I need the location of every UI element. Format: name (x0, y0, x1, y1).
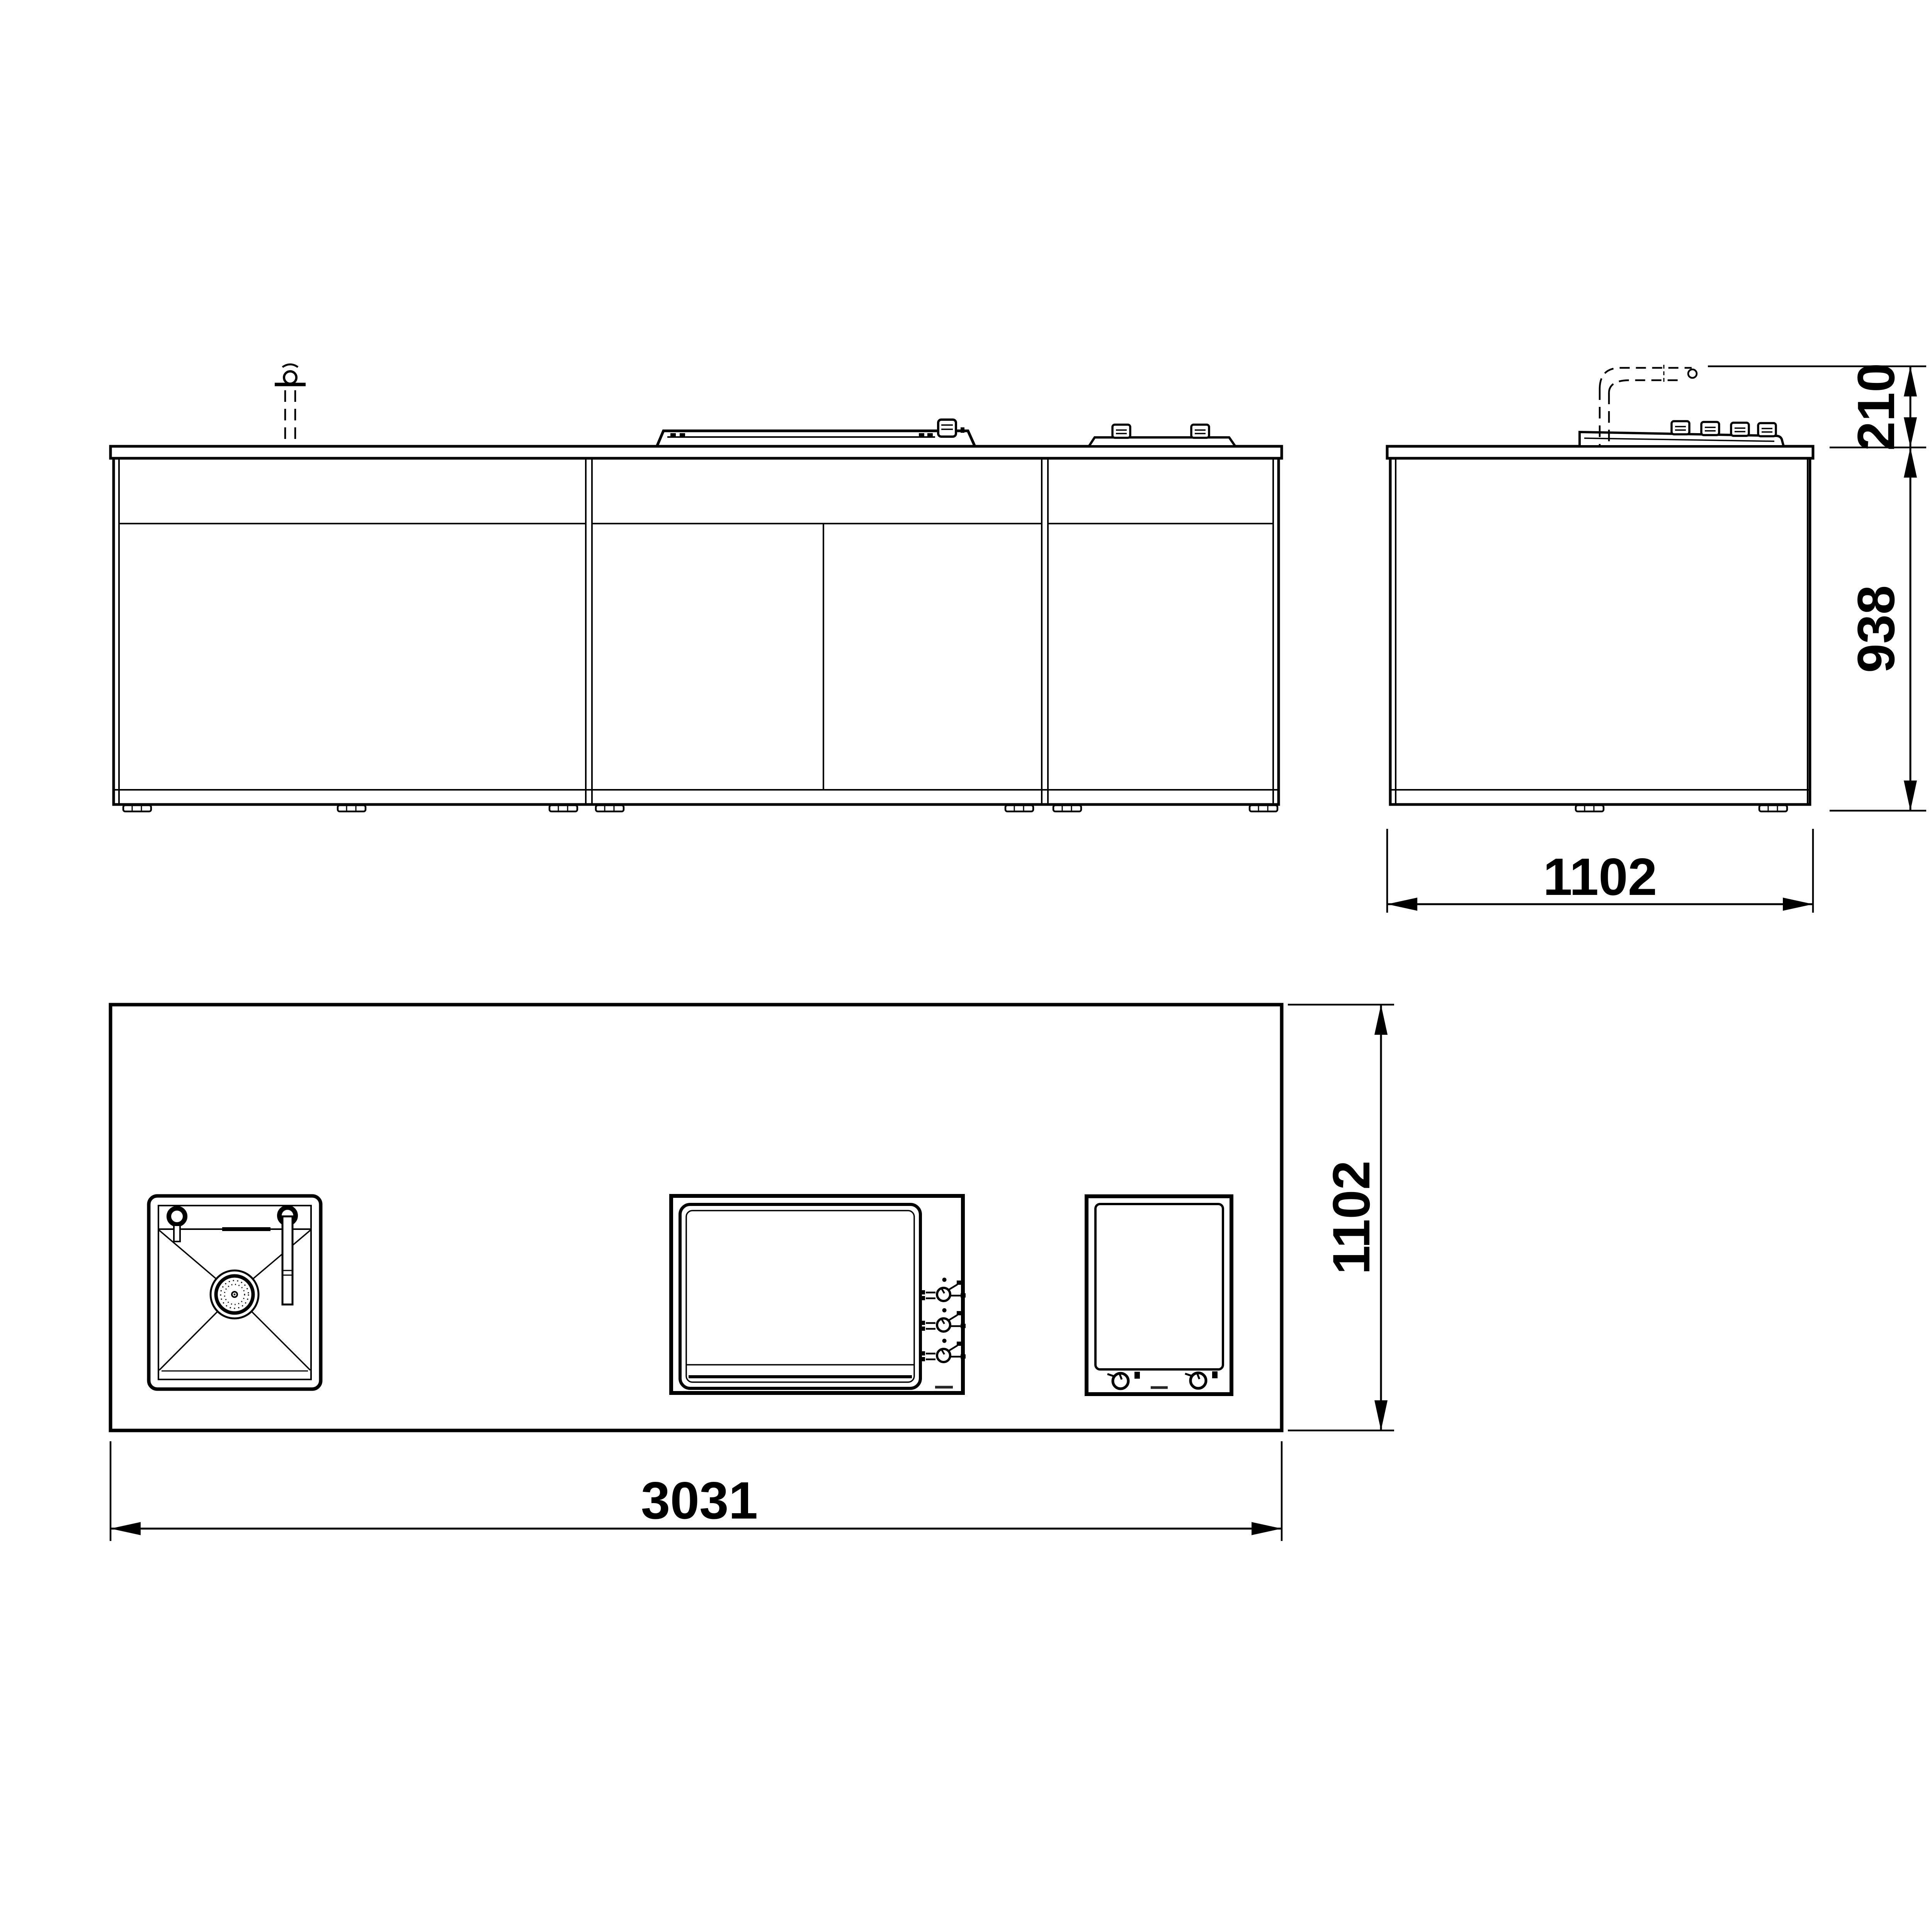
grill-lid-hinge-tick (670, 433, 676, 437)
grill-lid-hinge-tick (919, 433, 924, 437)
cabinet-foot (596, 805, 624, 811)
cabinet-foot (1759, 805, 1787, 811)
rail-knob (1758, 423, 1776, 436)
side-burner-base (1089, 437, 1235, 446)
sink-drain-center-dot (234, 1294, 236, 1296)
grill-lid-base (657, 431, 975, 446)
dim-label-side-depth: 1102 (1543, 847, 1657, 906)
side-burner-knob (1191, 425, 1209, 438)
grill-surface-liner (686, 1211, 914, 1382)
rail-knob (1701, 422, 1719, 435)
plan-view (111, 1005, 1282, 1430)
rail-knob (1672, 421, 1689, 434)
grill-lid-hinge-tick (927, 433, 933, 437)
dim-label-plan-depth: 1102 (1322, 1160, 1381, 1274)
cabinet-foot (1250, 805, 1277, 811)
canvas-background (0, 0, 1932, 1932)
grill-lid-thermometer-knob (938, 420, 956, 437)
dim-label-faucet-height: 210 (1847, 363, 1905, 451)
sink-tap-lever (174, 1225, 180, 1242)
grill-lid-hinge-tick (680, 433, 685, 437)
cabinet-foot (338, 805, 366, 811)
front-worktop-slab (111, 446, 1282, 458)
grill-lid-latch (961, 427, 964, 433)
front-cabinet-body (114, 458, 1279, 804)
dim-label-overall-length: 3031 (641, 1471, 758, 1530)
dim-label-cabinet-height: 938 (1847, 585, 1905, 673)
technical-drawing-page: 210 938 1102 3031 (0, 0, 1932, 1932)
cabinet-foot (1053, 805, 1081, 811)
plan-side-burner (1087, 1196, 1231, 1394)
side-cabinet-body (1390, 458, 1810, 804)
cabinet-foot (549, 805, 577, 811)
burner-surface (1095, 1204, 1223, 1369)
sink-faucet-spout-arm (282, 1216, 293, 1304)
rail-knob (1731, 423, 1749, 436)
cabinet-foot (1005, 805, 1033, 811)
side-worktop-slab (1387, 446, 1813, 458)
plan-grill (671, 1196, 966, 1393)
side-burner-knob (1112, 425, 1130, 438)
faucet-spout-outlet (1688, 369, 1697, 378)
plan-sink (149, 1196, 321, 1389)
faucet-spout-tip (284, 371, 296, 384)
technical-drawing: 210 938 1102 3031 (0, 0, 1932, 1932)
cabinet-foot (1576, 805, 1604, 811)
cabinet-foot (123, 805, 151, 811)
